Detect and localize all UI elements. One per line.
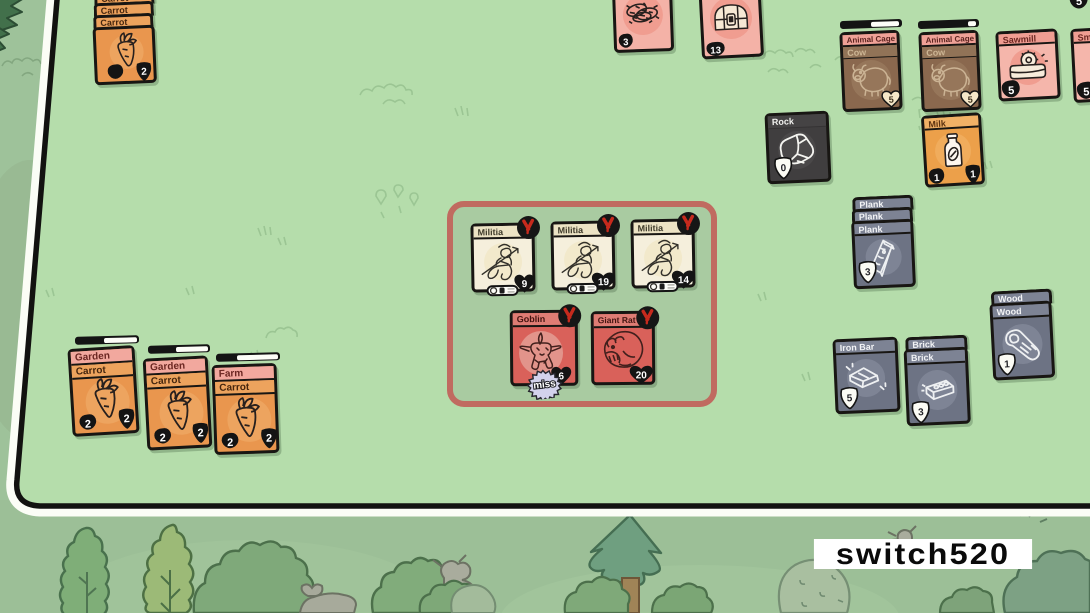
svg-text:5: 5 bbox=[889, 95, 894, 105]
svg-text:2: 2 bbox=[197, 427, 204, 439]
svg-text:5: 5 bbox=[968, 95, 973, 105]
svg-text:20: 20 bbox=[636, 370, 648, 381]
svg-text:3: 3 bbox=[623, 37, 629, 48]
svg-text:3: 3 bbox=[865, 267, 871, 278]
svg-text:1: 1 bbox=[934, 173, 941, 184]
svg-text:13: 13 bbox=[710, 45, 721, 57]
svg-text:5: 5 bbox=[846, 393, 852, 404]
svg-text:5: 5 bbox=[1083, 86, 1090, 98]
svg-text:1: 1 bbox=[1004, 359, 1011, 370]
svg-text:2: 2 bbox=[123, 413, 130, 425]
svg-text:14: 14 bbox=[678, 275, 690, 286]
svg-text:2: 2 bbox=[227, 437, 234, 449]
svg-text:0: 0 bbox=[780, 163, 786, 174]
svg-text:5: 5 bbox=[1076, 0, 1082, 8]
svg-text:2: 2 bbox=[141, 67, 147, 78]
svg-text:5: 5 bbox=[1008, 85, 1015, 97]
svg-text:2: 2 bbox=[266, 433, 273, 445]
svg-text:2: 2 bbox=[159, 432, 166, 444]
svg-text:2: 2 bbox=[85, 418, 92, 430]
svg-text:19: 19 bbox=[598, 277, 610, 288]
svg-text:9: 9 bbox=[522, 279, 528, 290]
svg-text:1: 1 bbox=[970, 169, 977, 180]
svg-text:3: 3 bbox=[918, 407, 924, 418]
